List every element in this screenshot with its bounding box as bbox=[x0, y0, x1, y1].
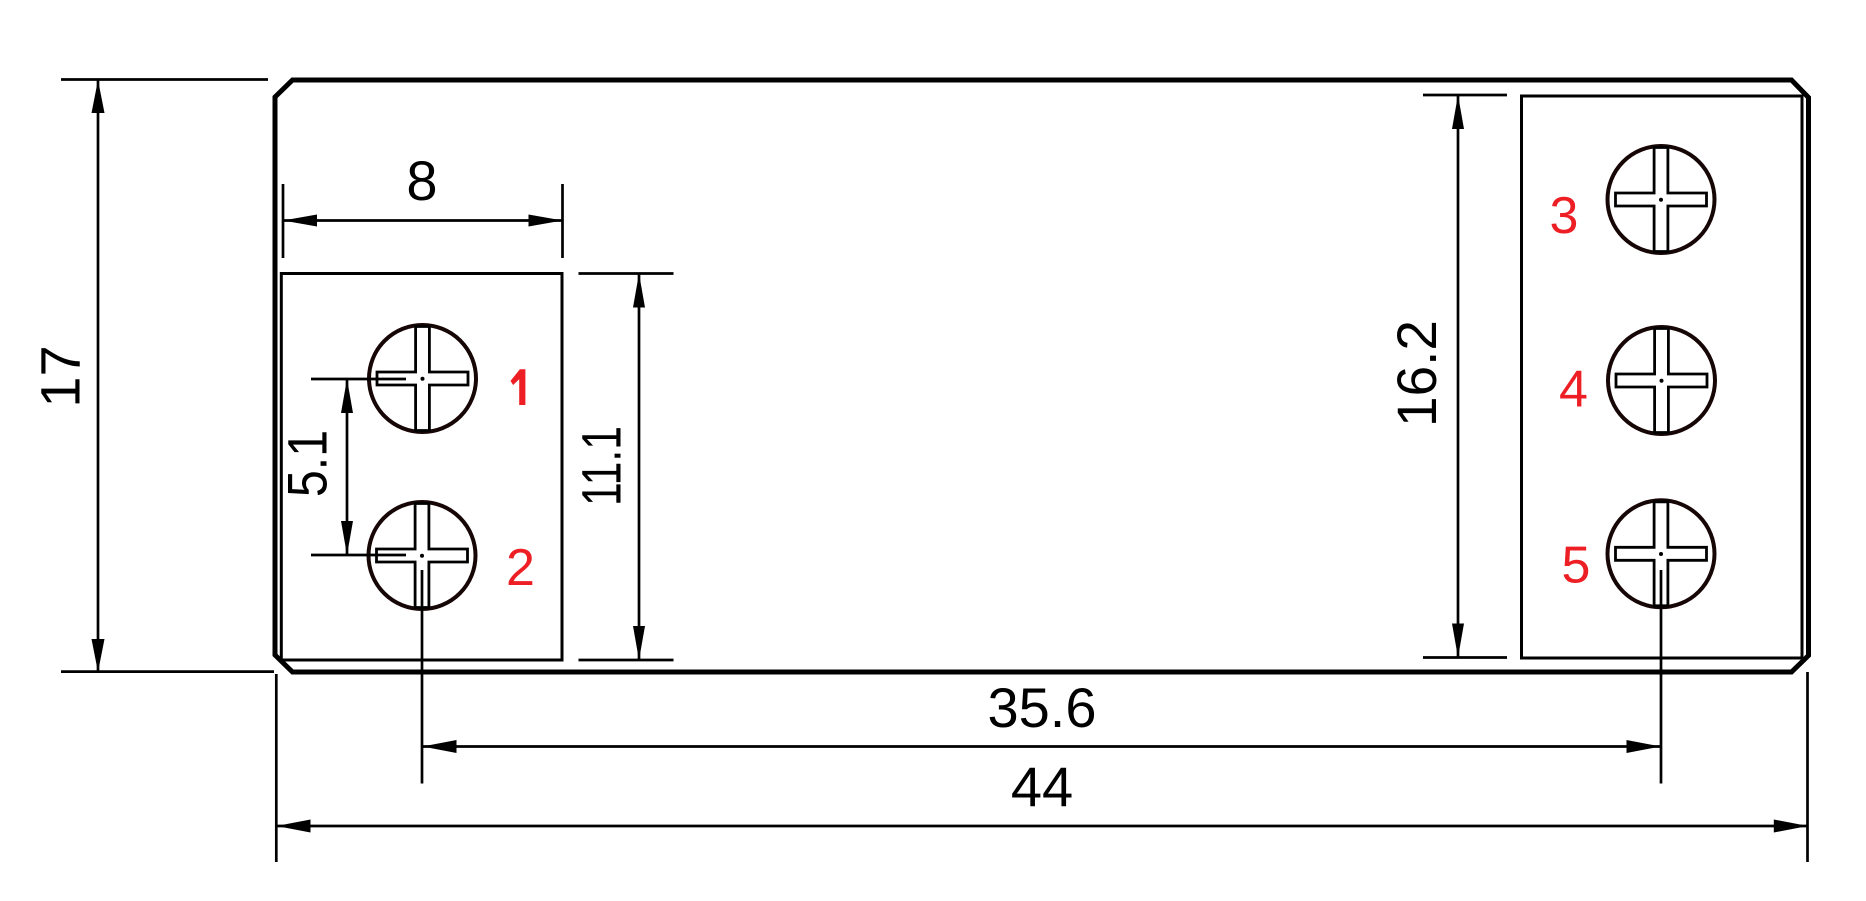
svg-text:2: 2 bbox=[506, 539, 535, 597]
svg-text:44: 44 bbox=[1011, 755, 1073, 818]
svg-text:4: 4 bbox=[1559, 361, 1588, 419]
svg-text:35.6: 35.6 bbox=[988, 676, 1097, 739]
svg-text:16.2: 16.2 bbox=[1385, 320, 1448, 427]
svg-text:5: 5 bbox=[1562, 537, 1591, 595]
svg-text:11.1: 11.1 bbox=[570, 426, 633, 506]
svg-text:8: 8 bbox=[406, 149, 437, 212]
svg-text:5.1: 5.1 bbox=[276, 430, 339, 497]
svg-text:3: 3 bbox=[1550, 187, 1579, 245]
svg-text:17: 17 bbox=[29, 345, 92, 407]
